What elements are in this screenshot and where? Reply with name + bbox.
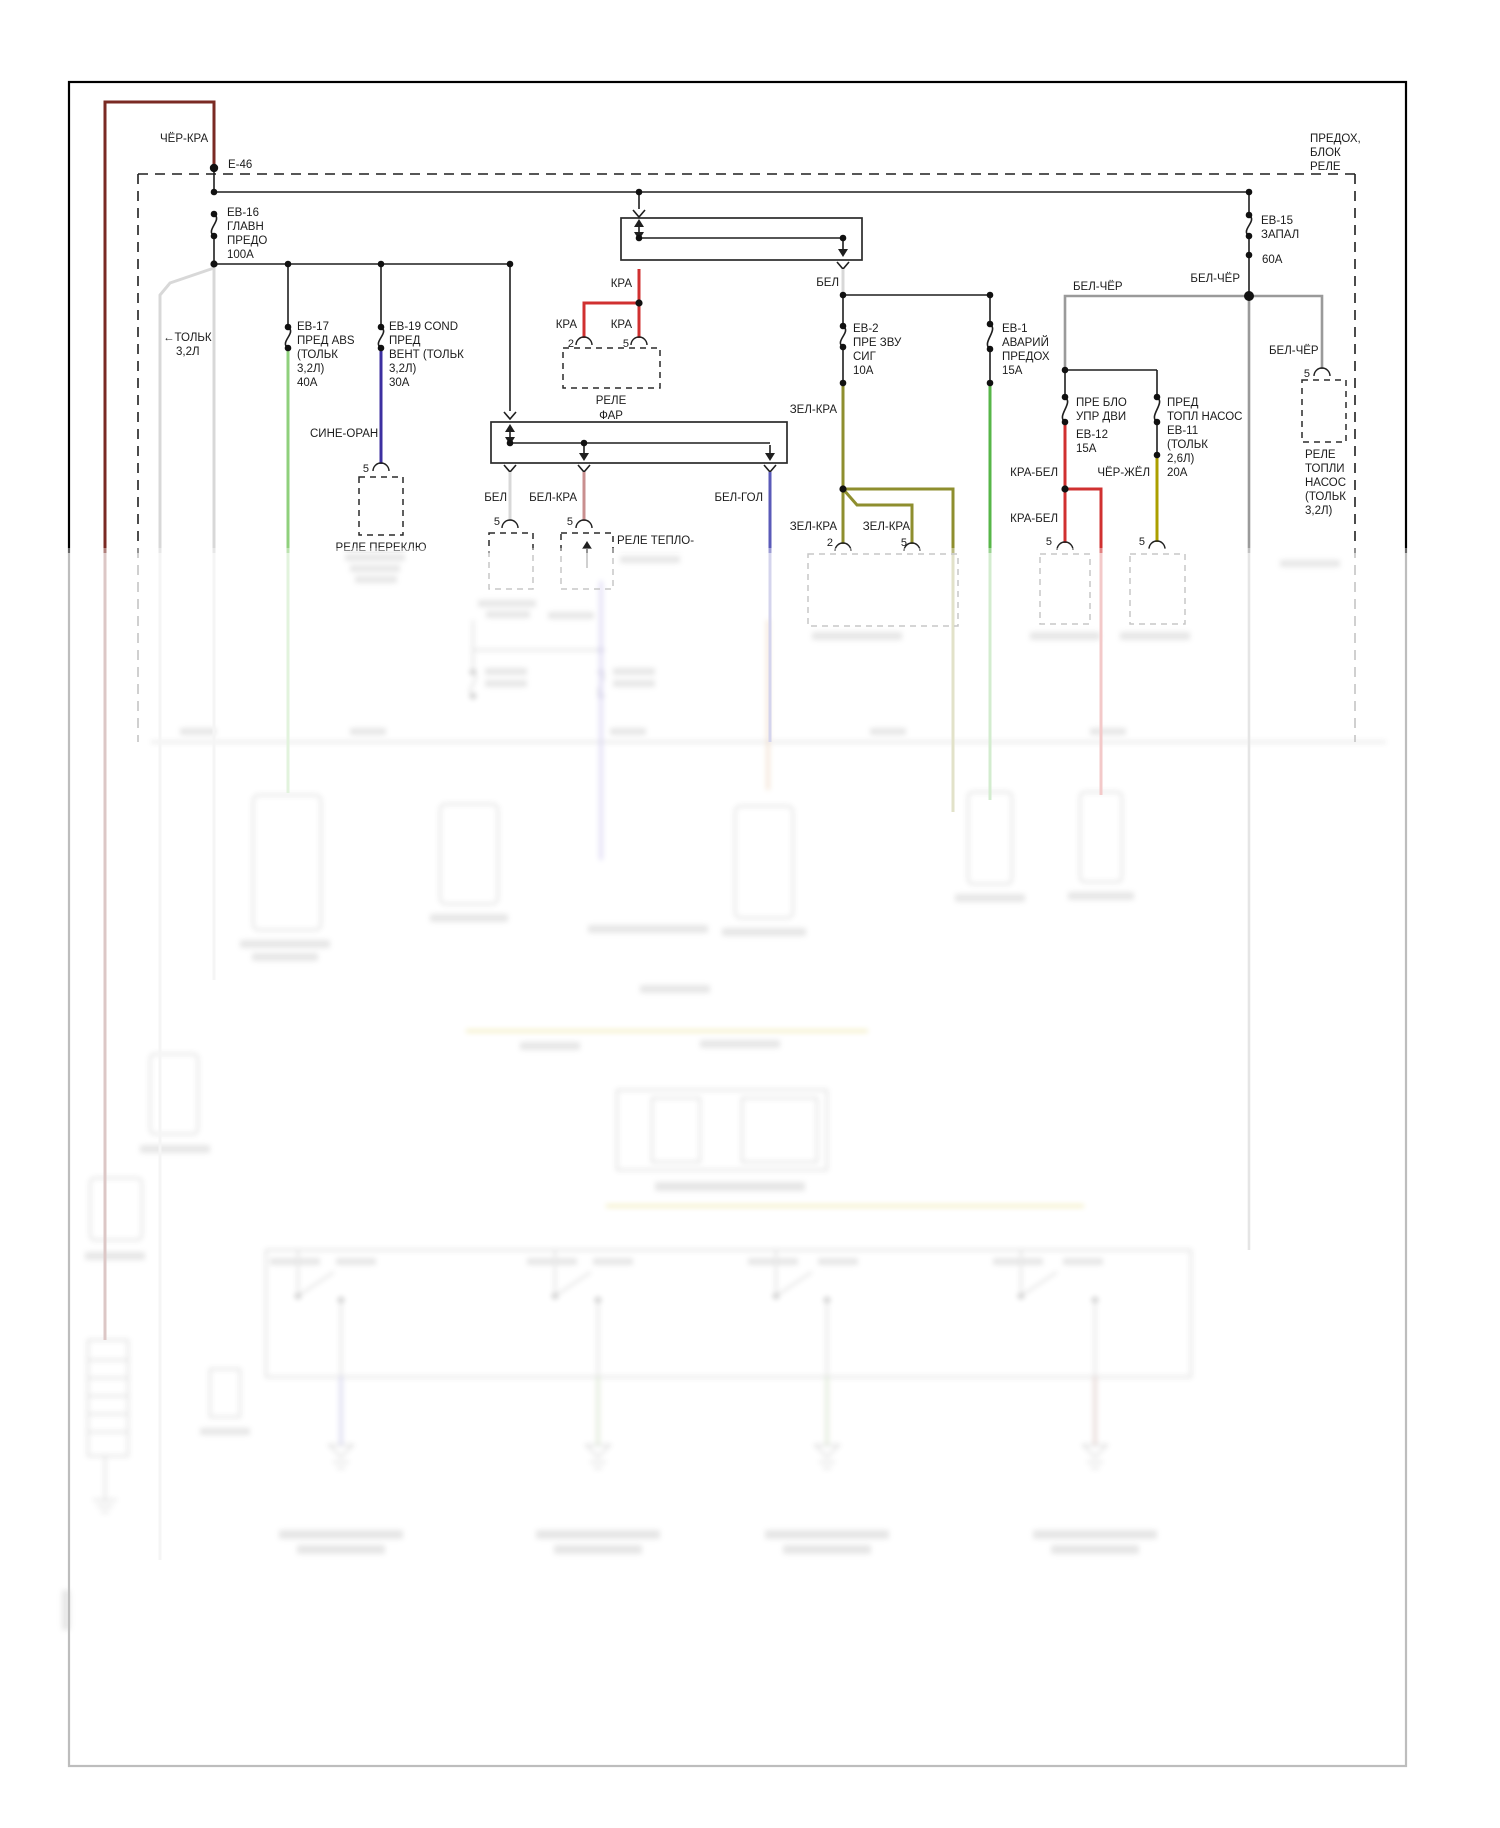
label-block-title-2: БЛОК xyxy=(1310,147,1341,159)
connector-arc-fuel-relay xyxy=(1314,368,1330,376)
label-zel-kra-p2: ЗЕЛ-КРА xyxy=(790,521,838,533)
label-fuse-eb2-4: 10А xyxy=(853,365,874,377)
label-fuse-eb19-3: ВЕНТ (ТОЛЬК xyxy=(389,349,464,361)
connector-arc-pereklyu xyxy=(373,463,389,471)
label-pin5-far: 5 xyxy=(623,338,629,350)
label-wire-kra-p2: КРА xyxy=(556,319,578,331)
fog-overlay-feather xyxy=(0,548,1500,553)
label-note-engine-1: ←ТОЛЬК xyxy=(163,332,212,344)
label-kra-bel-top: КРА-БЕЛ xyxy=(1010,467,1058,479)
label-wire-cher-kra: ЧЁР-КРА xyxy=(160,133,208,145)
label-fuse-eb17-4: 3,2Л) xyxy=(297,363,325,375)
relay-fuel-pump-box xyxy=(1302,380,1346,442)
label-pin5-bel-kra: 5 xyxy=(567,516,573,528)
connector-arc-cher-zhel xyxy=(1149,541,1165,549)
label-fuse-eb11-2: ТОПЛ НАСОС xyxy=(1167,411,1243,423)
label-fuse-eb19-1: ЕВ-19 COND xyxy=(389,321,458,333)
label-fuse-eb1-3: ПРЕДОХ xyxy=(1002,351,1050,363)
power-distribution-schematic: ЧЁР-КРА Е-46 ПРЕДОХ, БЛОК РЕЛЕ ЕВ-16 ГЛА… xyxy=(0,0,1500,1828)
label-relay-fuel-4: (ТОЛЬК xyxy=(1305,491,1346,503)
label-bel-gol-out: БЕЛ-ГОЛ xyxy=(714,492,763,504)
label-relay-fuel-3: НАСОС xyxy=(1305,477,1346,489)
label-fuse-eb16-3: ПРЕДО xyxy=(227,235,267,247)
label-fuse-eb1-2: АВАРИЙ xyxy=(1002,336,1049,349)
label-fuse-eb17-1: ЕВ-17 xyxy=(297,321,329,333)
label-fuse-eb12-4: 15А xyxy=(1076,443,1097,455)
label-zel-kra-top: ЗЕЛ-КРА xyxy=(790,404,838,416)
label-relay-teplo: РЕЛЕ ТЕПЛО- xyxy=(617,535,694,547)
relay-pereklyu-box xyxy=(359,477,403,535)
connector-arc-far-2 xyxy=(576,337,592,345)
label-relay-far-2: ФАР xyxy=(599,410,623,422)
label-fuse-eb12-1: ПРЕ БЛО xyxy=(1076,397,1127,409)
label-fuse-eb17-3: (ТОЛЬК xyxy=(297,349,338,361)
label-cher-zhel: ЧЁР-ЖЁЛ xyxy=(1097,467,1150,479)
label-fuse-eb15-2: ЗАПАЛ xyxy=(1261,229,1299,241)
relay-far-box xyxy=(563,348,660,388)
label-bel-out: БЕЛ xyxy=(484,492,507,504)
connector-arc-bel xyxy=(502,520,518,528)
label-pin5-bel: 5 xyxy=(494,516,500,528)
label-fuse-eb2-2: ПРЕ ЗВУ xyxy=(853,337,902,349)
label-fuse-eb15-1: ЕВ-15 xyxy=(1261,215,1293,227)
relay-teplo-arrowhead xyxy=(582,541,592,549)
label-pin5-fuel-relay: 5 xyxy=(1304,368,1310,380)
label-pin2-zel: 2 xyxy=(827,537,833,549)
label-pin5-cher-zhel: 5 xyxy=(1139,536,1145,548)
label-bel-kra-out: БЕЛ-КРА xyxy=(529,492,577,504)
label-wire-bel-top: БЕЛ xyxy=(816,277,839,289)
label-bel-cher-left: БЕЛ-ЧЁР xyxy=(1190,273,1240,285)
label-ground-e46: Е-46 xyxy=(228,159,252,171)
label-relay-fuel-1: РЕЛЕ xyxy=(1305,449,1336,461)
label-fuse-eb1-4: 15А xyxy=(1002,365,1023,377)
label-fuse-eb2-1: ЕВ-2 xyxy=(853,323,879,335)
label-bel-cher-right: БЕЛ-ЧЁР xyxy=(1269,345,1319,357)
label-wire-kra-top: КРА xyxy=(611,278,633,290)
fuse-symbols xyxy=(211,214,1251,422)
label-fuse-eb16-2: ГЛАВН xyxy=(227,221,264,233)
label-block-title-3: РЕЛЕ xyxy=(1310,161,1341,173)
label-relay-fuel-2: ТОПЛИ xyxy=(1305,463,1345,475)
label-zel-kra-p5: ЗЕЛ-КРА xyxy=(863,521,911,533)
fog-overlay xyxy=(0,553,1500,1828)
label-fuse-eb12-2: УПР ДВИ xyxy=(1076,411,1126,423)
labels: ЧЁР-КРА Е-46 ПРЕДОХ, БЛОК РЕЛЕ ЕВ-16 ГЛА… xyxy=(160,133,1361,554)
label-fuse-eb16-1: ЕВ-16 xyxy=(227,207,259,219)
label-fuse-eb17-5: 40А xyxy=(297,377,318,389)
label-fuse-eb11-6: 20А xyxy=(1167,467,1188,479)
label-fuse-eb11-5: 2,6Л) xyxy=(1167,453,1195,465)
label-kra-bel-bottom: КРА-БЕЛ xyxy=(1010,513,1058,525)
label-relay-fuel-5: 3,2Л) xyxy=(1305,505,1333,517)
label-fuse-eb16-4: 100А xyxy=(227,249,254,261)
label-wire-kra-p5: КРА xyxy=(611,319,633,331)
label-note-engine-2: 3,2Л xyxy=(176,346,200,358)
label-block-title-1: ПРЕДОХ, xyxy=(1310,133,1361,145)
label-pin5-kra-bel: 5 xyxy=(1046,536,1052,548)
label-wire-sine-oran: СИНЕ-ОРАН xyxy=(310,428,378,440)
label-fuse-eb2-3: СИГ xyxy=(853,351,877,363)
label-pin5-pereklyu: 5 xyxy=(363,463,369,475)
label-fuse-eb11-4: (ТОЛЬК xyxy=(1167,439,1208,451)
label-fuse-eb19-5: 30А xyxy=(389,377,410,389)
label-fuse-eb11-3: ЕВ-11 xyxy=(1167,425,1198,437)
label-fuse-eb19-2: ПРЕД xyxy=(389,335,421,347)
label-fuse-eb11-1: ПРЕД xyxy=(1167,397,1199,409)
label-fuse-eb15-3: 60А xyxy=(1262,254,1283,266)
label-pin2-far: 2 xyxy=(568,338,574,350)
label-relay-far-1: РЕЛЕ xyxy=(596,395,627,407)
wiring-diagram-page: ЧЁР-КРА Е-46 ПРЕДОХ, БЛОК РЕЛЕ ЕВ-16 ГЛА… xyxy=(0,0,1500,1828)
connector-arc-far-5 xyxy=(631,337,647,345)
label-fuse-eb19-4: 3,2Л) xyxy=(389,363,417,375)
label-fuse-eb12-3: ЕВ-12 xyxy=(1076,429,1108,441)
label-fuse-eb17-2: ПРЕД ABS xyxy=(297,335,355,347)
label-bel-cher-mid: БЕЛ-ЧЁР xyxy=(1073,281,1123,293)
label-pin5-zel: 5 xyxy=(901,537,907,549)
junction-box-ignition xyxy=(621,218,862,260)
label-fuse-eb1-1: ЕВ-1 xyxy=(1002,323,1028,335)
connector-arc-bel-kra xyxy=(576,520,592,528)
